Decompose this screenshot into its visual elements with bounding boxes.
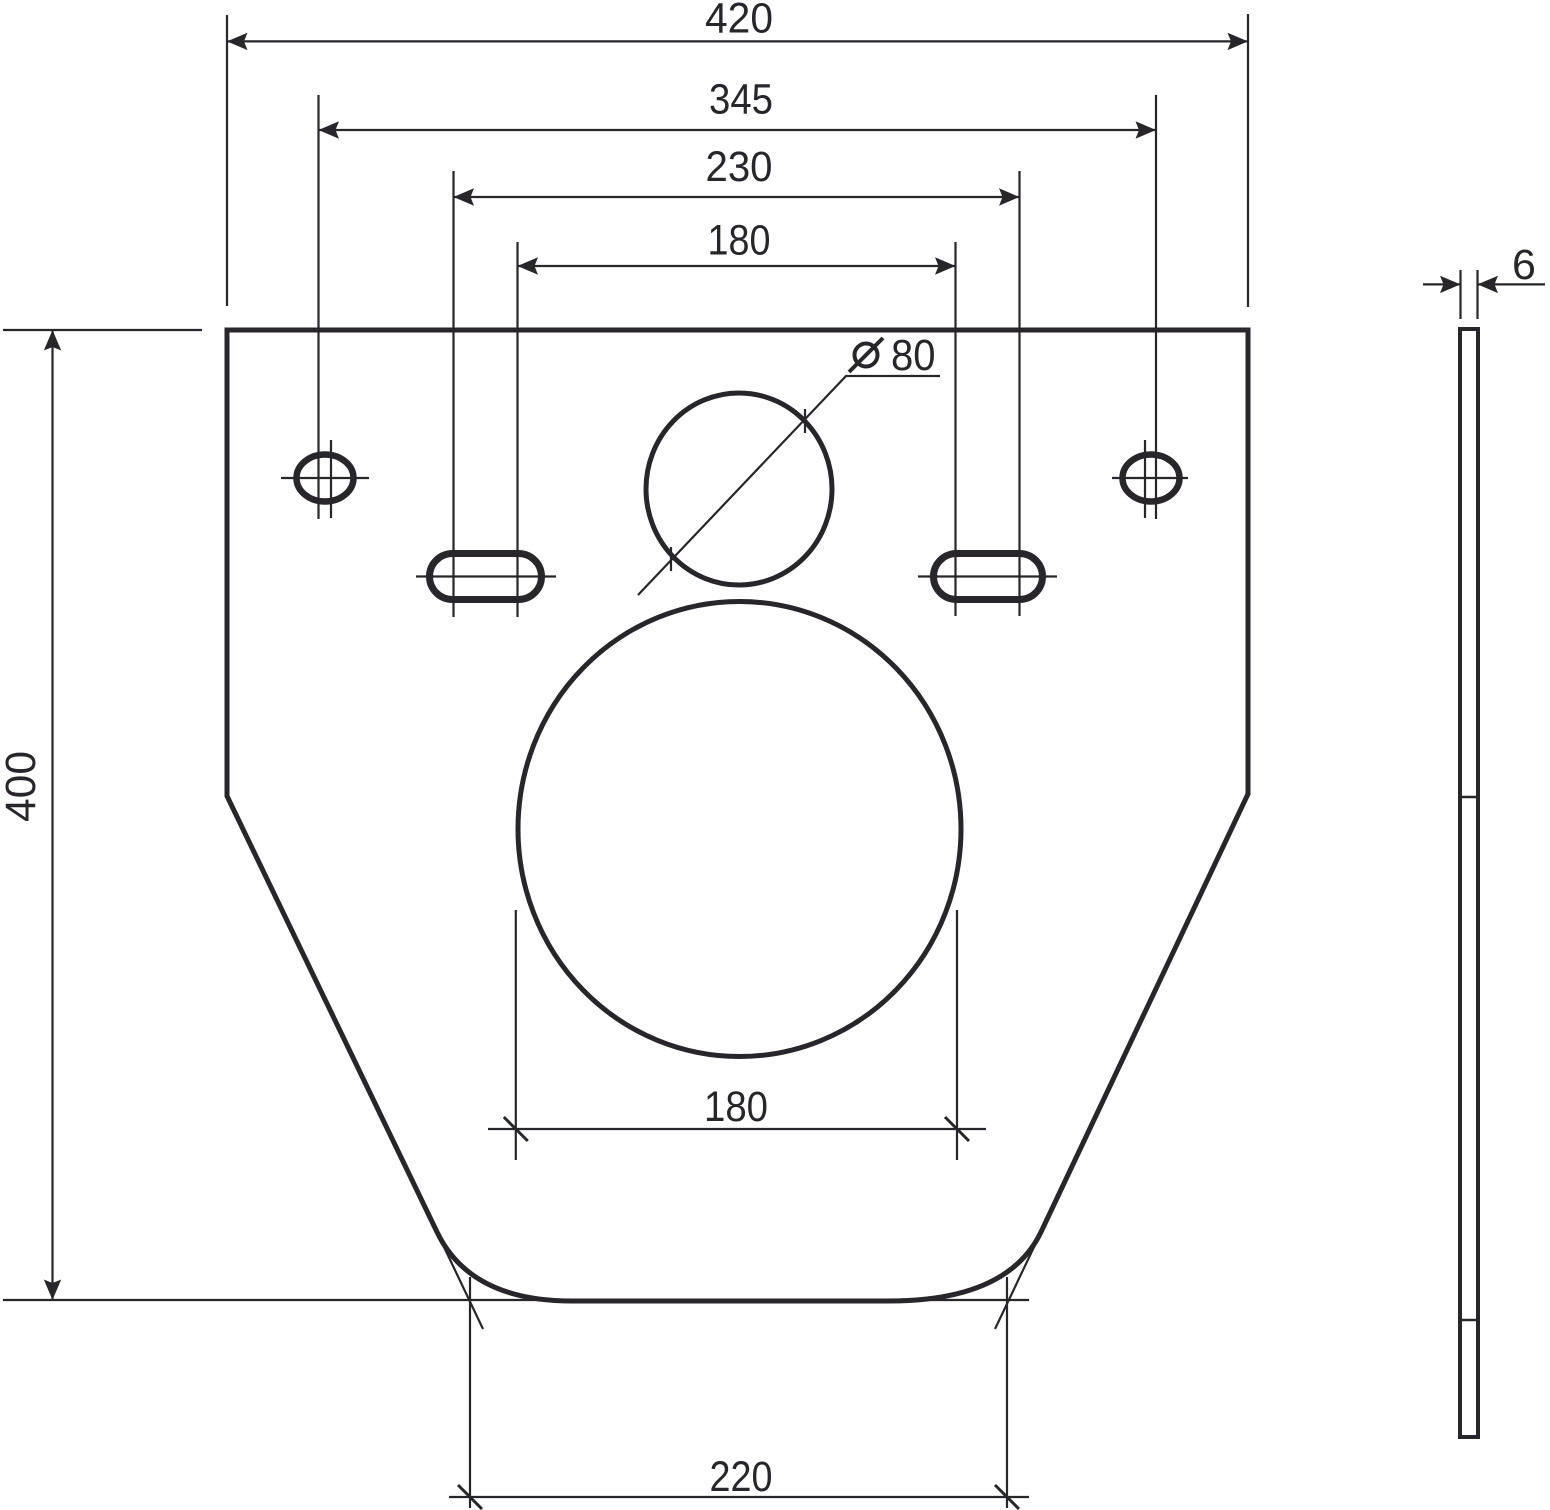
svg-text:80: 80 [891, 331, 936, 380]
svg-text:230: 230 [706, 143, 773, 191]
svg-text:180: 180 [708, 217, 771, 265]
svg-text:180: 180 [704, 1083, 768, 1131]
svg-text:6: 6 [1512, 241, 1536, 289]
svg-text:220: 220 [710, 1453, 773, 1501]
svg-text:420: 420 [705, 0, 773, 43]
svg-text:345: 345 [709, 76, 773, 124]
svg-text:400: 400 [0, 751, 45, 822]
